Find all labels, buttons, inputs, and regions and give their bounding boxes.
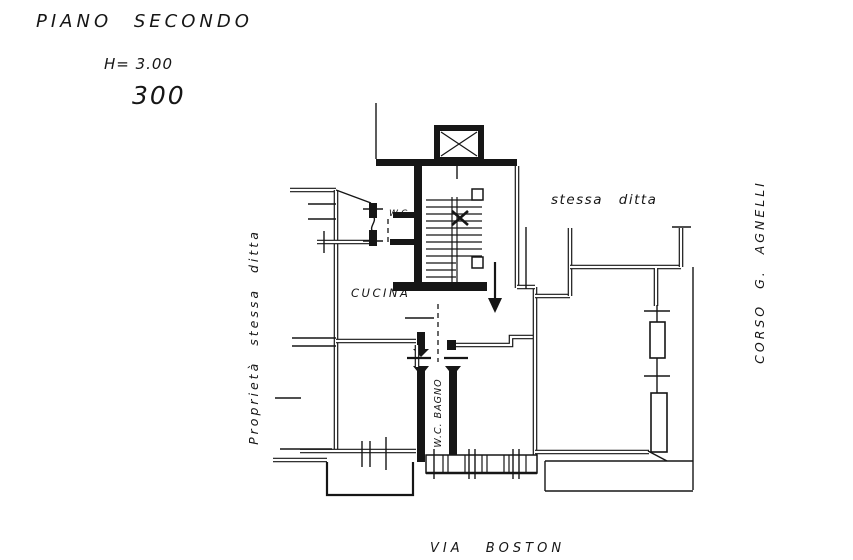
stair-start-x-mark bbox=[452, 211, 468, 225]
bath-wall-left-tip bbox=[413, 366, 429, 376]
bath-corridor-wall-right bbox=[449, 371, 457, 462]
east-french-door bbox=[651, 393, 667, 452]
scale-label: 300 bbox=[132, 81, 186, 110]
staircase bbox=[426, 189, 483, 283]
street-east-label: CORSO G. AGNELLI bbox=[752, 180, 767, 364]
wc-wall-stub-upper bbox=[393, 212, 415, 218]
elevator-shaft bbox=[434, 125, 484, 162]
stair-newel-top bbox=[472, 189, 483, 200]
height-label: H= 3.00 bbox=[104, 55, 173, 73]
floor-label: PIANO SECONDO bbox=[36, 11, 253, 32]
title-block: PIANO SECONDO H= 3.00 300 bbox=[36, 11, 253, 110]
room-corner-pier bbox=[447, 340, 456, 350]
stair-newel-bottom bbox=[472, 257, 483, 268]
diagonal-wall bbox=[336, 190, 371, 203]
balcony-east-outline bbox=[545, 461, 693, 491]
direction-arrow bbox=[488, 262, 502, 313]
partition-walls bbox=[273, 166, 681, 460]
wc-wall-stub-lower bbox=[390, 239, 415, 245]
stairwell-bottom-wall bbox=[393, 282, 487, 291]
stairwell-left-wall bbox=[414, 166, 422, 284]
stair-treads-upper bbox=[426, 200, 482, 256]
wc-left-wall-lower bbox=[369, 230, 377, 246]
street-south-label: VIA BOSTON bbox=[430, 541, 565, 556]
floor-plan-drawing: PIANO SECONDO H= 3.00 300 stessa ditta P… bbox=[0, 0, 853, 560]
wc-details bbox=[324, 209, 388, 253]
floorplan-page: PIANO SECONDO H= 3.00 300 stessa ditta P… bbox=[0, 0, 853, 560]
left-boundary-label: Proprietà stessa ditta bbox=[246, 229, 261, 445]
wc-left-wall-upper bbox=[369, 203, 377, 218]
bath-corridor-label: W.C. BAGNO bbox=[433, 378, 444, 447]
arrow-head-icon bbox=[488, 298, 502, 313]
bath-corridor-wall-left bbox=[417, 371, 425, 462]
east-window bbox=[650, 322, 665, 358]
bath-wall-right-tip bbox=[445, 366, 461, 376]
east-windows bbox=[644, 305, 670, 461]
right-area-label: stessa ditta bbox=[551, 192, 657, 208]
balcony-east bbox=[545, 461, 693, 491]
wc-window-squiggle bbox=[372, 216, 375, 232]
wall-southeast-room-north bbox=[456, 337, 535, 345]
left-room-window-ticks bbox=[362, 437, 386, 470]
